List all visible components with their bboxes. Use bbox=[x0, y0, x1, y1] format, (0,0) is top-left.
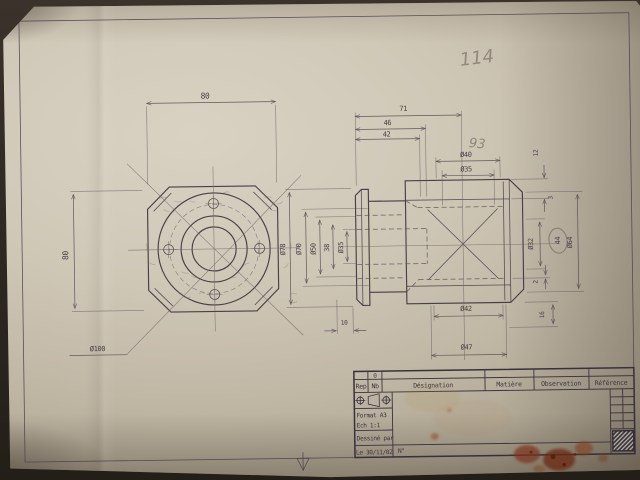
dim-dia70: Ø70 bbox=[295, 243, 303, 255]
col-observation: Observation bbox=[541, 379, 581, 388]
paper-sheet: 80 80 Ø100 bbox=[0, 0, 640, 480]
dim-44: 44 bbox=[554, 237, 562, 245]
scale-label: Ech 1:1 bbox=[357, 422, 381, 429]
col-rep: Rep bbox=[356, 382, 367, 390]
format-label: Format A3 bbox=[356, 412, 387, 419]
dim-dia32: Ø32 bbox=[527, 238, 535, 250]
col-nb: Nb bbox=[371, 382, 379, 390]
dim-dia35-side: Ø35 bbox=[337, 242, 345, 254]
dim-10: 10 bbox=[341, 320, 349, 327]
dim-42: 42 bbox=[383, 131, 391, 139]
drawn-by-label: Dessiné par bbox=[357, 434, 394, 443]
photo-of-drawing: 80 80 Ø100 bbox=[0, 0, 640, 480]
number-label: N° bbox=[398, 447, 405, 455]
col-reference: Référence bbox=[595, 379, 628, 387]
dim-46: 46 bbox=[383, 119, 391, 127]
col-matiere: Matière bbox=[496, 380, 522, 388]
dim-dia47: Ø47 bbox=[461, 343, 473, 351]
front-dims: 80 80 Ø100 bbox=[59, 91, 279, 356]
technical-drawing: 80 80 Ø100 bbox=[0, 0, 640, 480]
date-label: Le 30/11/02 bbox=[356, 449, 393, 457]
dim-front-flange: Ø100 bbox=[90, 345, 106, 353]
dim-dia35-top: Ø35 bbox=[460, 165, 472, 173]
dim-12: 12 bbox=[533, 149, 540, 157]
dim-dia78: Ø78 bbox=[279, 244, 287, 256]
side-view: 71 46 42 Ø40 Ø35 Ø78 bbox=[277, 102, 585, 362]
projection-symbol bbox=[355, 394, 391, 407]
handwritten-note: 93 bbox=[468, 136, 486, 153]
dim-front-height: 80 bbox=[61, 250, 70, 260]
dim-dia40: Ø40 bbox=[460, 151, 472, 159]
side-centerlines bbox=[338, 110, 561, 362]
dim-dia64: Ø64 bbox=[566, 237, 574, 249]
dim-2: 2 bbox=[533, 280, 540, 284]
centerlines bbox=[125, 161, 304, 353]
dim-dia50: Ø50 bbox=[310, 243, 318, 255]
dim-38: 38 bbox=[323, 244, 331, 252]
dim-3: 3 bbox=[547, 195, 554, 199]
sheet-frame bbox=[19, 13, 635, 474]
revision-cell: 0 bbox=[373, 373, 377, 380]
company-logo bbox=[613, 431, 634, 451]
front-view: 80 80 Ø100 bbox=[59, 90, 304, 355]
dim-16: 16 bbox=[539, 311, 546, 319]
dim-dia42: Ø42 bbox=[460, 305, 472, 313]
handwritten-page-number: 114 bbox=[459, 46, 496, 71]
dim-71: 71 bbox=[399, 105, 407, 113]
dim-front-width: 80 bbox=[200, 92, 210, 101]
side-dims-bottom: 10 Ø42 Ø47 bbox=[324, 297, 507, 361]
side-dims-right: 12 3 Ø32 44 Ø64 2 16 bbox=[507, 148, 584, 327]
side-dims-top: 71 46 42 Ø40 Ø35 bbox=[355, 103, 500, 206]
